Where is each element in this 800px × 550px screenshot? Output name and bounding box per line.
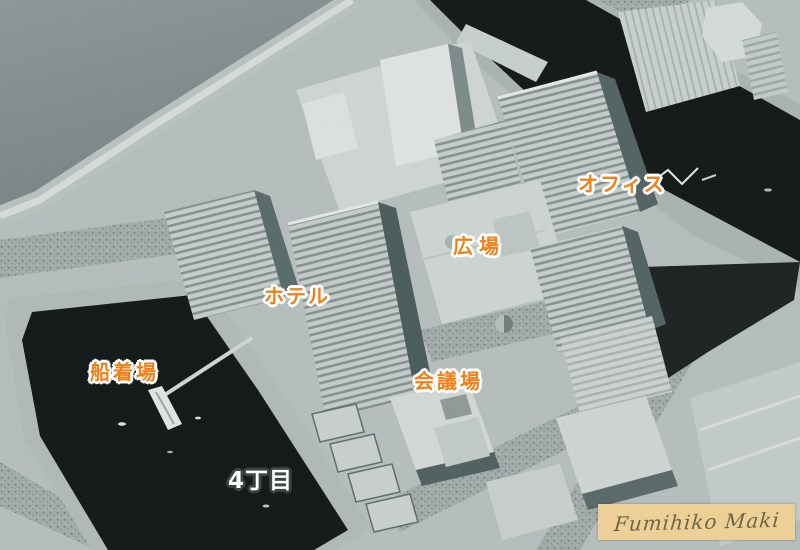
photo-grain (0, 0, 800, 550)
label-conference-hall: 会議場 (414, 371, 483, 391)
label-hotel: ホテル (264, 286, 330, 306)
architect-signature: Fumihiko Maki (613, 508, 781, 536)
label-office: オフィス (578, 174, 666, 194)
model-photo: オフィス 広場 ホテル 会議場 船着場 4丁目 Fumihiko Maki (0, 0, 800, 550)
model-photo-rendering (0, 0, 800, 550)
label-boat-dock: 船着場 (90, 362, 159, 382)
label-plaza: 広場 (453, 236, 505, 256)
signature-plate: Fumihiko Maki (598, 504, 795, 540)
label-district-4chome: 4丁目 (228, 470, 293, 493)
